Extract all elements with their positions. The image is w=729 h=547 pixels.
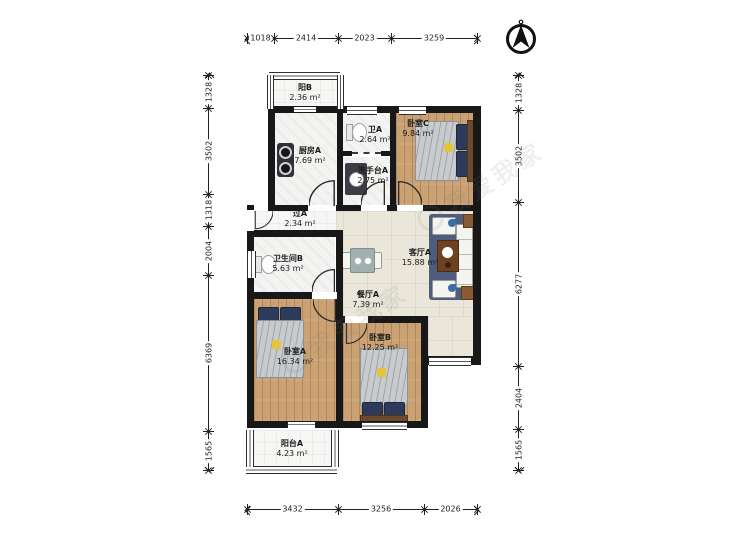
accent-pillow-icon [444,143,453,152]
window [362,422,407,430]
dim-tick [513,366,524,367]
dim-label: 2004 [204,238,213,262]
dim-label: 2026 [438,505,462,514]
dim-tick [274,33,275,44]
dim-tick [338,33,339,44]
room-label-bedroom-a: 卧室A 16.34 m² [260,347,330,368]
dim-tick [513,110,524,111]
hall-passage-floor [336,211,343,230]
north-arrow-icon [500,12,542,60]
wall-bathroom-b-top [247,230,343,237]
living-lower-floor [428,316,473,356]
dim-label: 2023 [352,34,376,43]
room-name: 阳B [270,83,340,93]
room-area: 12.25 m² [345,343,415,353]
dim-tick [513,429,524,430]
dim-label: 1328 [204,79,213,103]
dim-label: 3256 [369,505,393,514]
room-label-balcony-a: 阳台A 4.23 m² [257,439,327,460]
room-area: 15.88 m² [385,258,455,268]
room-name: 卧室A [260,347,330,357]
dimension-right: 13283502627724041565 [510,75,526,470]
dim-label: 3432 [280,505,304,514]
window [399,106,426,115]
dim-label: 1018 [248,34,272,43]
window [331,430,339,467]
room-label-hall: 过A 2.34 m² [265,209,335,230]
dim-label: 3259 [422,34,446,43]
dimension-bottom: 343232562026 [247,501,477,517]
dim-tick [203,470,214,471]
dim-tick [513,470,524,471]
floorplan-canvas: 1018241420233259 343232562026 1328350213… [0,0,729,547]
plant-icon [448,284,456,292]
wall-divider-center [336,230,343,428]
dim-tick [203,108,214,109]
room-name: 洗手台A [338,166,408,176]
room-area: 4.23 m² [257,449,327,459]
room-name: 客厅A [385,248,455,258]
dim-tick [247,504,248,515]
dim-label: 2404 [514,385,523,409]
dimension-top: 1018241420233259 [247,30,477,46]
accent-pillow-icon [377,368,386,377]
room-name: 过A [265,209,335,219]
room-label-bedroom-b: 卧室B 12.25 m² [345,333,415,354]
window [246,430,254,467]
pillow-icon [384,402,405,416]
dim-label: 1565 [204,438,213,462]
wall-left-lower [247,205,254,428]
room-label-bedroom-c: 卧室C 9.84 m² [385,119,451,140]
wall-right-outer [473,106,481,365]
wall-stub [381,151,390,156]
room-label-balcony-b: 阳B 2.36 m² [270,83,340,104]
dining-table-icon [350,248,375,273]
room-name: 卧室C [385,119,451,129]
room-label-bathroom-b: 卫生间B 5.63 m² [253,254,323,275]
dim-label: 3502 [204,139,213,163]
wall-bedroom-b-right [421,316,428,428]
dim-tick [391,33,392,44]
pillow-icon [362,402,383,416]
dim-label: 3502 [514,144,523,168]
room-name: 餐厅A [333,290,403,300]
dim-label: 6369 [204,341,213,365]
room-area: 9.84 m² [385,129,451,139]
bed-icon [360,348,408,406]
sliding-door [287,422,316,428]
dim-label: 6277 [514,272,523,296]
partition-dashed [352,152,381,154]
room-label-living: 客厅A 15.88 m² [385,248,455,269]
plant-icon [448,219,456,227]
room-name: 卫生间B [253,254,323,264]
dim-tick [203,194,214,195]
door-arc [309,179,336,206]
dim-label: 1318 [204,198,213,222]
room-name: 阳台A [257,439,327,449]
pillow-icon [258,307,279,321]
room-name: 卧室B [345,333,415,343]
window [347,106,377,115]
dim-tick [203,431,214,432]
room-area: 5.63 m² [253,264,323,274]
dim-tick [513,202,524,203]
room-label-kitchen: 厨房A 7.69 m² [275,146,345,167]
dimension-left: 132835021318200463691565 [200,75,216,470]
dim-label: 1565 [514,437,523,461]
dim-tick [203,75,214,76]
room-area: 2.75 m² [338,176,408,186]
dim-label: 1328 [514,80,523,104]
room-area: 2.36 m² [270,93,340,103]
window [269,72,340,80]
door-gap [247,210,254,231]
room-label-dining: 餐厅A 7.39 m² [333,290,403,311]
pillow-icon [280,307,301,321]
room-label-washstand: 洗手台A 2.75 m² [338,166,408,187]
dim-tick [424,504,425,515]
room-area: 16.34 m² [260,357,330,367]
dim-tick [477,504,478,515]
door-gap [397,205,423,211]
dim-tick [203,226,214,227]
window [429,357,471,366]
wall-kitchen-left [268,106,275,211]
dim-tick [338,504,339,515]
room-name: 厨房A [275,146,345,156]
dim-tick [477,33,478,44]
room-area: 7.39 m² [333,300,403,310]
room-area: 2.34 m² [265,219,335,229]
room-area: 7.69 m² [275,156,345,166]
dim-tick [203,275,214,276]
window [246,466,337,474]
sliding-door [293,107,317,112]
dim-tick [513,75,524,76]
door-gap [345,316,368,323]
door-gap [361,205,387,211]
dim-label: 2414 [294,34,318,43]
